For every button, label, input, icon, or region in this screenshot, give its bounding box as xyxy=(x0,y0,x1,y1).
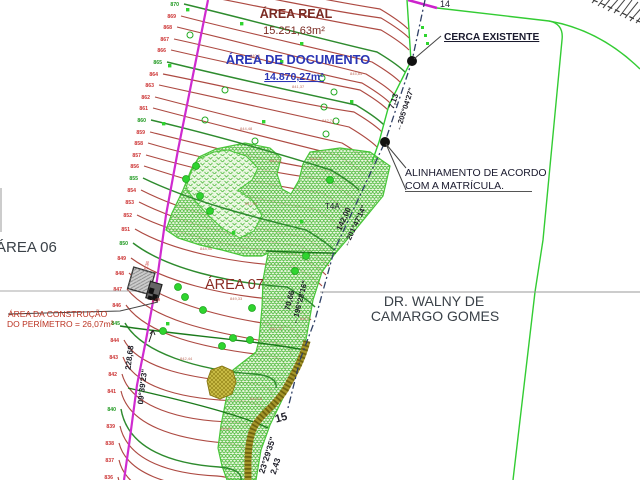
svg-text:858: 858 xyxy=(134,141,143,147)
svg-text:DO PERÍMETRO = 26,07m²: DO PERÍMETRO = 26,07m² xyxy=(7,319,114,329)
svg-text:867: 867 xyxy=(160,37,169,43)
svg-text:CERCA EXISTENTE: CERCA EXISTENTE xyxy=(444,32,539,43)
svg-text:848: 848 xyxy=(115,271,124,277)
svg-text:842: 842 xyxy=(108,372,117,378)
svg-text:843: 843 xyxy=(109,355,118,361)
svg-text:15.251,63m²: 15.251,63m² xyxy=(263,25,325,37)
svg-text:842,44: 842,44 xyxy=(180,356,193,361)
svg-text:847: 847 xyxy=(113,287,122,293)
svg-text:839: 839 xyxy=(106,424,115,430)
svg-text:846,22: 846,22 xyxy=(310,156,323,161)
svg-text:ALINHAMENTO DE ACORDO: ALINHAMENTO DE ACORDO xyxy=(405,167,547,179)
svg-text:854: 854 xyxy=(127,188,136,194)
svg-text:838: 838 xyxy=(105,441,114,447)
svg-text:863: 863 xyxy=(145,83,154,89)
svg-text:COM A MATRÍCULA.: COM A MATRÍCULA. xyxy=(405,179,504,192)
svg-text:840: 840 xyxy=(107,407,116,413)
svg-text:852: 852 xyxy=(123,213,132,219)
svg-text:ÁREA REAL: ÁREA REAL xyxy=(260,6,333,21)
svg-text:862: 862 xyxy=(141,95,150,101)
svg-text:841,7: 841,7 xyxy=(300,316,311,321)
svg-text:849: 849 xyxy=(117,256,126,262)
svg-text:847,59: 847,59 xyxy=(245,201,258,206)
svg-text:844: 844 xyxy=(110,338,119,344)
svg-text:DR. WALNY DE: DR. WALNY DE xyxy=(384,293,484,309)
svg-text:865: 865 xyxy=(153,60,162,66)
svg-text:840,70: 840,70 xyxy=(270,326,283,331)
svg-text:860: 860 xyxy=(137,118,146,124)
svg-text:CAMARGO GOMES: CAMARGO GOMES xyxy=(371,308,499,324)
svg-text:836: 836 xyxy=(104,475,113,480)
svg-text:850: 850 xyxy=(119,241,128,247)
svg-text:843,11: 843,11 xyxy=(270,158,283,163)
svg-text:T4A: T4A xyxy=(325,202,340,211)
svg-text:ÁREA DA CONSTRUÇÃO: ÁREA DA CONSTRUÇÃO xyxy=(8,309,108,319)
svg-text:844,48: 844,48 xyxy=(240,126,253,131)
svg-text:851: 851 xyxy=(121,227,130,233)
svg-text:ÁREA 06: ÁREA 06 xyxy=(0,239,57,256)
svg-text:857: 857 xyxy=(132,153,141,159)
svg-text:837: 837 xyxy=(105,458,114,464)
svg-text:842,74: 842,74 xyxy=(322,118,335,123)
svg-text:844,18: 844,18 xyxy=(250,396,263,401)
svg-text:841,37: 841,37 xyxy=(292,84,305,89)
svg-text:868: 868 xyxy=(163,25,172,31)
svg-text:855: 855 xyxy=(129,176,138,182)
svg-text:841: 841 xyxy=(107,389,116,395)
svg-text:840,0: 840,0 xyxy=(250,53,261,58)
svg-text:869: 869 xyxy=(167,14,176,20)
svg-text:14.870,27m²: 14.870,27m² xyxy=(264,71,324,83)
svg-text:866: 866 xyxy=(157,48,166,54)
svg-text:843,81: 843,81 xyxy=(220,426,233,431)
svg-text:848,96: 848,96 xyxy=(200,246,213,251)
svg-text:ÁREA 07: ÁREA 07 xyxy=(205,276,264,293)
svg-text:856: 856 xyxy=(130,164,139,170)
svg-text:870: 870 xyxy=(170,2,179,8)
svg-text:14: 14 xyxy=(440,0,450,9)
svg-text:ÁREA DE DOCUMENTO: ÁREA DE DOCUMENTO xyxy=(226,52,370,67)
svg-text:864: 864 xyxy=(149,72,158,78)
svg-text:846: 846 xyxy=(112,303,121,309)
svg-text:849,33: 849,33 xyxy=(230,296,243,301)
svg-text:859: 859 xyxy=(136,130,145,136)
svg-text:845,85: 845,85 xyxy=(350,71,363,76)
svg-text:861: 861 xyxy=(139,106,148,112)
svg-text:853: 853 xyxy=(125,200,134,206)
